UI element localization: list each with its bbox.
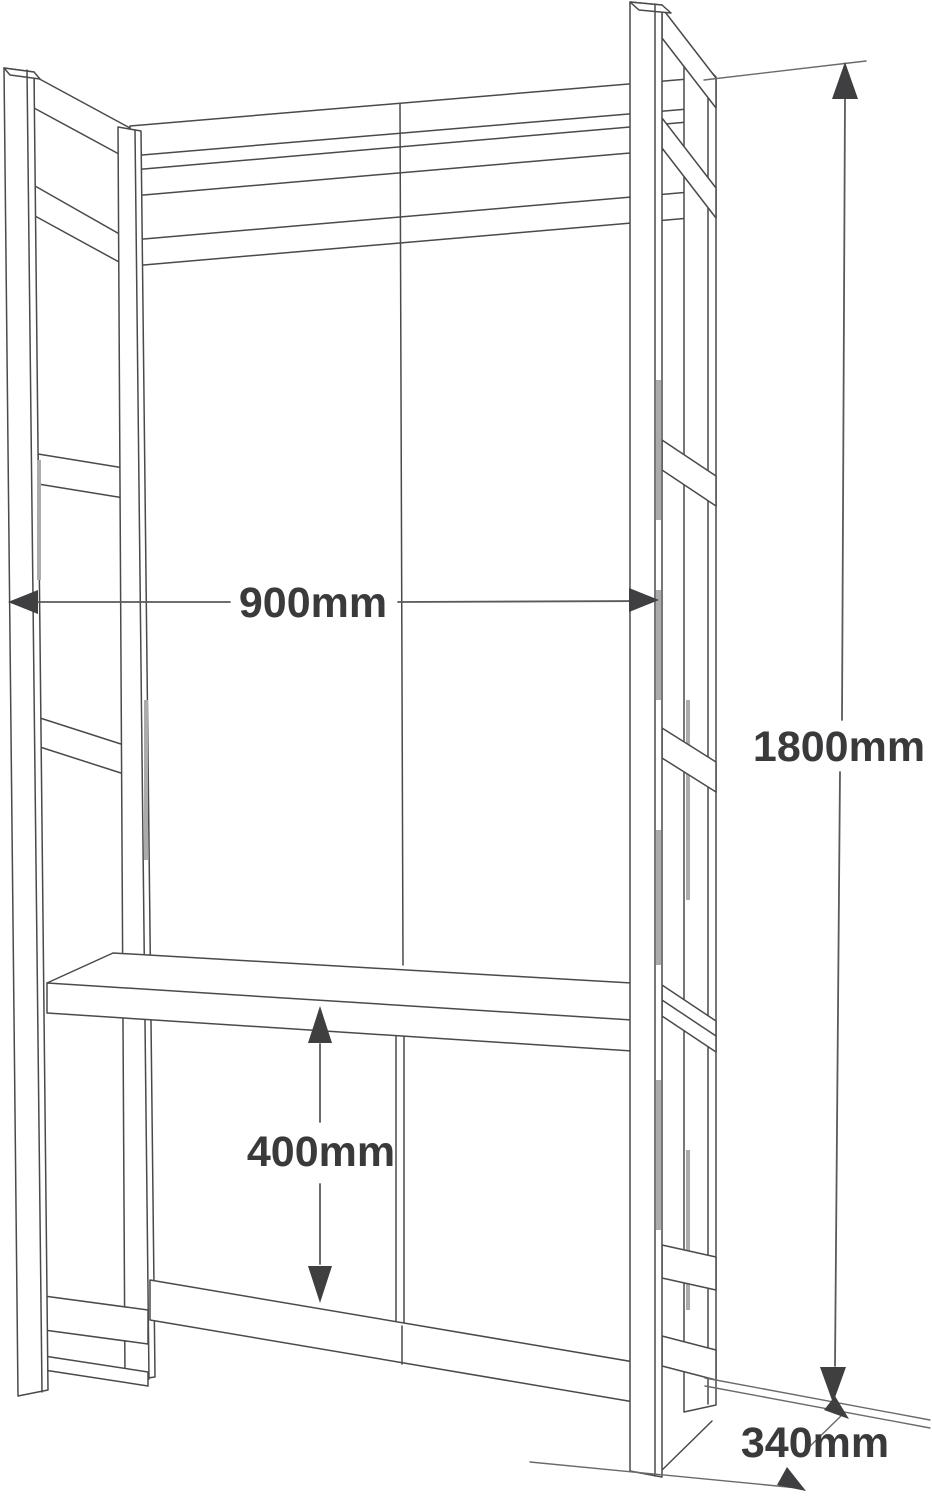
left-front-post-shading [37,460,41,580]
cabinet-height-dimension: 400mm [247,1006,395,1303]
right-rear-post-shading [686,700,690,900]
height-dimension-label: 1800mm [753,723,925,771]
left-rung-shelf2 [40,718,124,774]
left-frame [34,76,155,1381]
right-front-post-shading [656,1080,661,1230]
right-frame [658,8,716,1474]
height-arrow-bottom [820,1367,846,1403]
left-rear-post-shading [144,700,148,860]
cabinet-arrow-bottom [308,1266,332,1303]
top-rails [130,79,690,965]
right-front-post-shading [656,590,661,700]
height-dimension: 1800mm [704,61,925,1403]
cabinet-plinth-rail [150,1280,640,1403]
depth-extension-line-rear-a [705,1378,930,1420]
top-rail-rear [132,192,690,266]
width-dimension: 900mm [8,579,659,627]
cabinet-height-dimension-label: 400mm [247,1128,395,1176]
right-front-post-shading [656,380,661,520]
right-rear-post-shading [686,1150,690,1310]
left-front-post [4,68,48,1396]
depth-arrow-rear [824,1396,849,1419]
depth-arrow-front [777,1467,806,1491]
left-rung-shelf1 [38,454,124,498]
width-dimension-label: 900mm [239,579,387,627]
right-front-post [630,2,662,1477]
wardrobe-wireframe-svg: 900mm 1800mm 400mm 340mm [0,0,932,1500]
left-rung-upper [35,186,130,268]
right-foot-floor-edge [658,1421,712,1474]
depth-dimension-label: 340mm [741,1419,889,1467]
width-dim-line-right [398,601,655,602]
height-dim-line-lower [835,772,840,1366]
right-front-post-shading [656,830,661,965]
height-dim-line-upper [842,98,845,720]
left-rung-top [34,76,130,160]
dimension-drawing-canvas: 900mm 1800mm 400mm 340mm [0,0,932,1500]
height-arrow-top [832,62,858,99]
